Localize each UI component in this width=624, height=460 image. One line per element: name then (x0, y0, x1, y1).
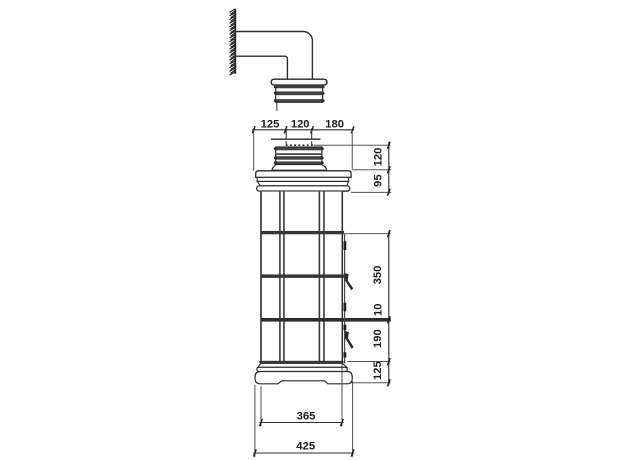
svg-text:180: 180 (325, 118, 344, 130)
svg-text:125: 125 (261, 118, 280, 130)
svg-text:120: 120 (373, 148, 385, 167)
svg-text:425: 425 (296, 441, 315, 453)
svg-text:95: 95 (373, 174, 385, 186)
svg-text:120: 120 (291, 118, 310, 130)
svg-text:350: 350 (372, 266, 384, 285)
svg-text:190: 190 (372, 329, 384, 348)
svg-text:125: 125 (372, 361, 384, 380)
svg-text:10: 10 (372, 303, 384, 315)
svg-text:365: 365 (297, 411, 316, 423)
